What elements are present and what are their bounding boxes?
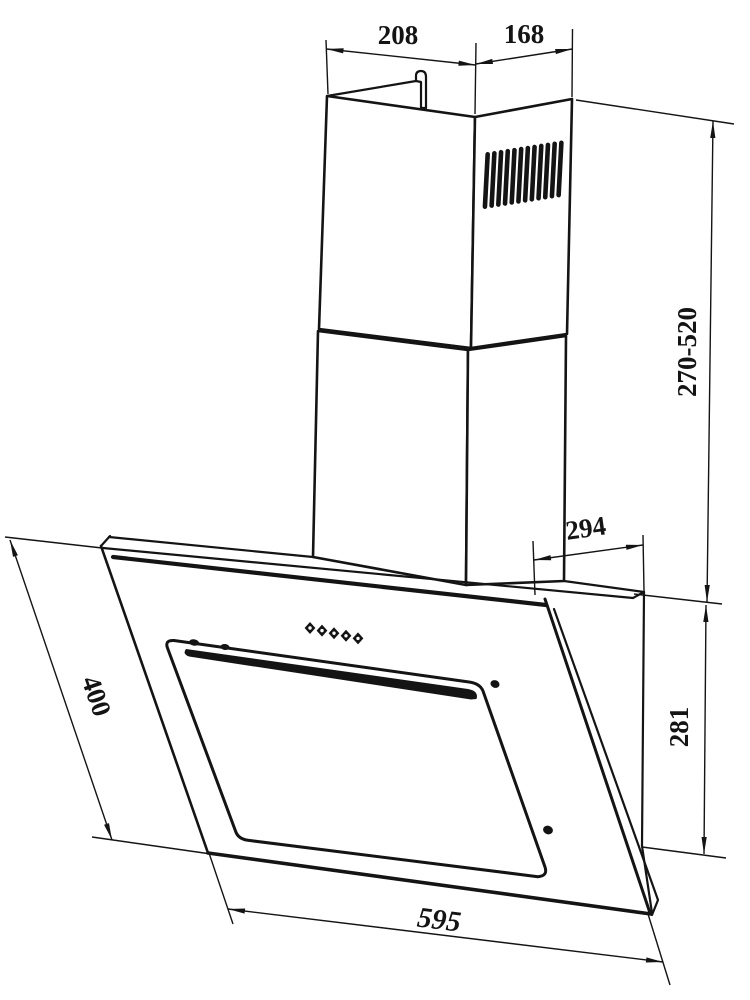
screw-hole-lower bbox=[542, 824, 554, 835]
glass-panel bbox=[167, 639, 554, 877]
chimney-lower-front-face bbox=[313, 331, 468, 585]
extension-line bbox=[643, 535, 644, 591]
hood-rear-right-edge bbox=[642, 592, 644, 846]
chimney-upper-section bbox=[319, 96, 572, 348]
control-button-center bbox=[332, 632, 335, 635]
glass-right-edge bbox=[545, 599, 650, 913]
control-button-center bbox=[320, 629, 323, 632]
extension-line bbox=[642, 847, 726, 858]
screw-hole-upper bbox=[489, 679, 500, 689]
extension-line bbox=[92, 837, 211, 854]
dimension-chimney-top-depth: 168 bbox=[476, 19, 573, 97]
chimney-lower-right-face bbox=[466, 336, 566, 585]
extension-line bbox=[576, 100, 734, 124]
hood-top-rear-edge-right bbox=[564, 581, 644, 592]
dim-label-hood-rear-height: 281 bbox=[664, 707, 694, 748]
extension-line bbox=[572, 29, 573, 97]
dimension-hood-panel-length: 400 bbox=[5, 537, 211, 854]
flange-top-edge bbox=[327, 81, 416, 96]
chimney-upper-right-face bbox=[471, 99, 572, 348]
extension-line bbox=[5, 537, 102, 548]
hood-left-edge bbox=[101, 546, 208, 853]
extension-line bbox=[648, 914, 670, 985]
dim-label-hood-top-depth: 294 bbox=[564, 510, 608, 545]
glass-edge-shadow bbox=[185, 649, 477, 700]
dim-label-hood-width: 595 bbox=[416, 902, 463, 939]
diagram-canvas: 208 168 270-520 294 281 400 595 bbox=[0, 0, 750, 1000]
extension-line bbox=[326, 40, 328, 94]
control-buttons bbox=[305, 622, 364, 644]
dimension-line bbox=[476, 49, 573, 64]
dimension-hood-width: 595 bbox=[209, 853, 670, 985]
dimension-line bbox=[704, 605, 706, 854]
chimney-upper-front-face bbox=[319, 96, 475, 348]
dimension-hood-rear-height: 281 bbox=[642, 605, 726, 858]
extension-line bbox=[209, 853, 233, 924]
dimension-line bbox=[707, 121, 713, 602]
hood-top-left-bevel bbox=[101, 536, 110, 546]
extension-line bbox=[475, 43, 476, 114]
dim-label-chimney-height: 270-520 bbox=[672, 307, 702, 397]
dimension-line bbox=[327, 49, 476, 65]
control-button-center bbox=[356, 637, 359, 640]
control-button-center bbox=[308, 626, 311, 629]
extension-line bbox=[634, 594, 722, 604]
cooker-hood-drawing: 208 168 270-520 294 281 400 595 bbox=[0, 0, 750, 1000]
dim-label-chimney-top-depth: 168 bbox=[504, 19, 545, 49]
dim-label-hood-panel-length: 400 bbox=[76, 672, 118, 720]
hood-top-rear-edge-left bbox=[109, 537, 313, 557]
dim-label-chimney-top-width: 208 bbox=[378, 20, 419, 50]
control-button-center bbox=[344, 634, 347, 637]
chimney-lower-section bbox=[313, 331, 566, 585]
mounting-hook-icon bbox=[416, 71, 426, 108]
